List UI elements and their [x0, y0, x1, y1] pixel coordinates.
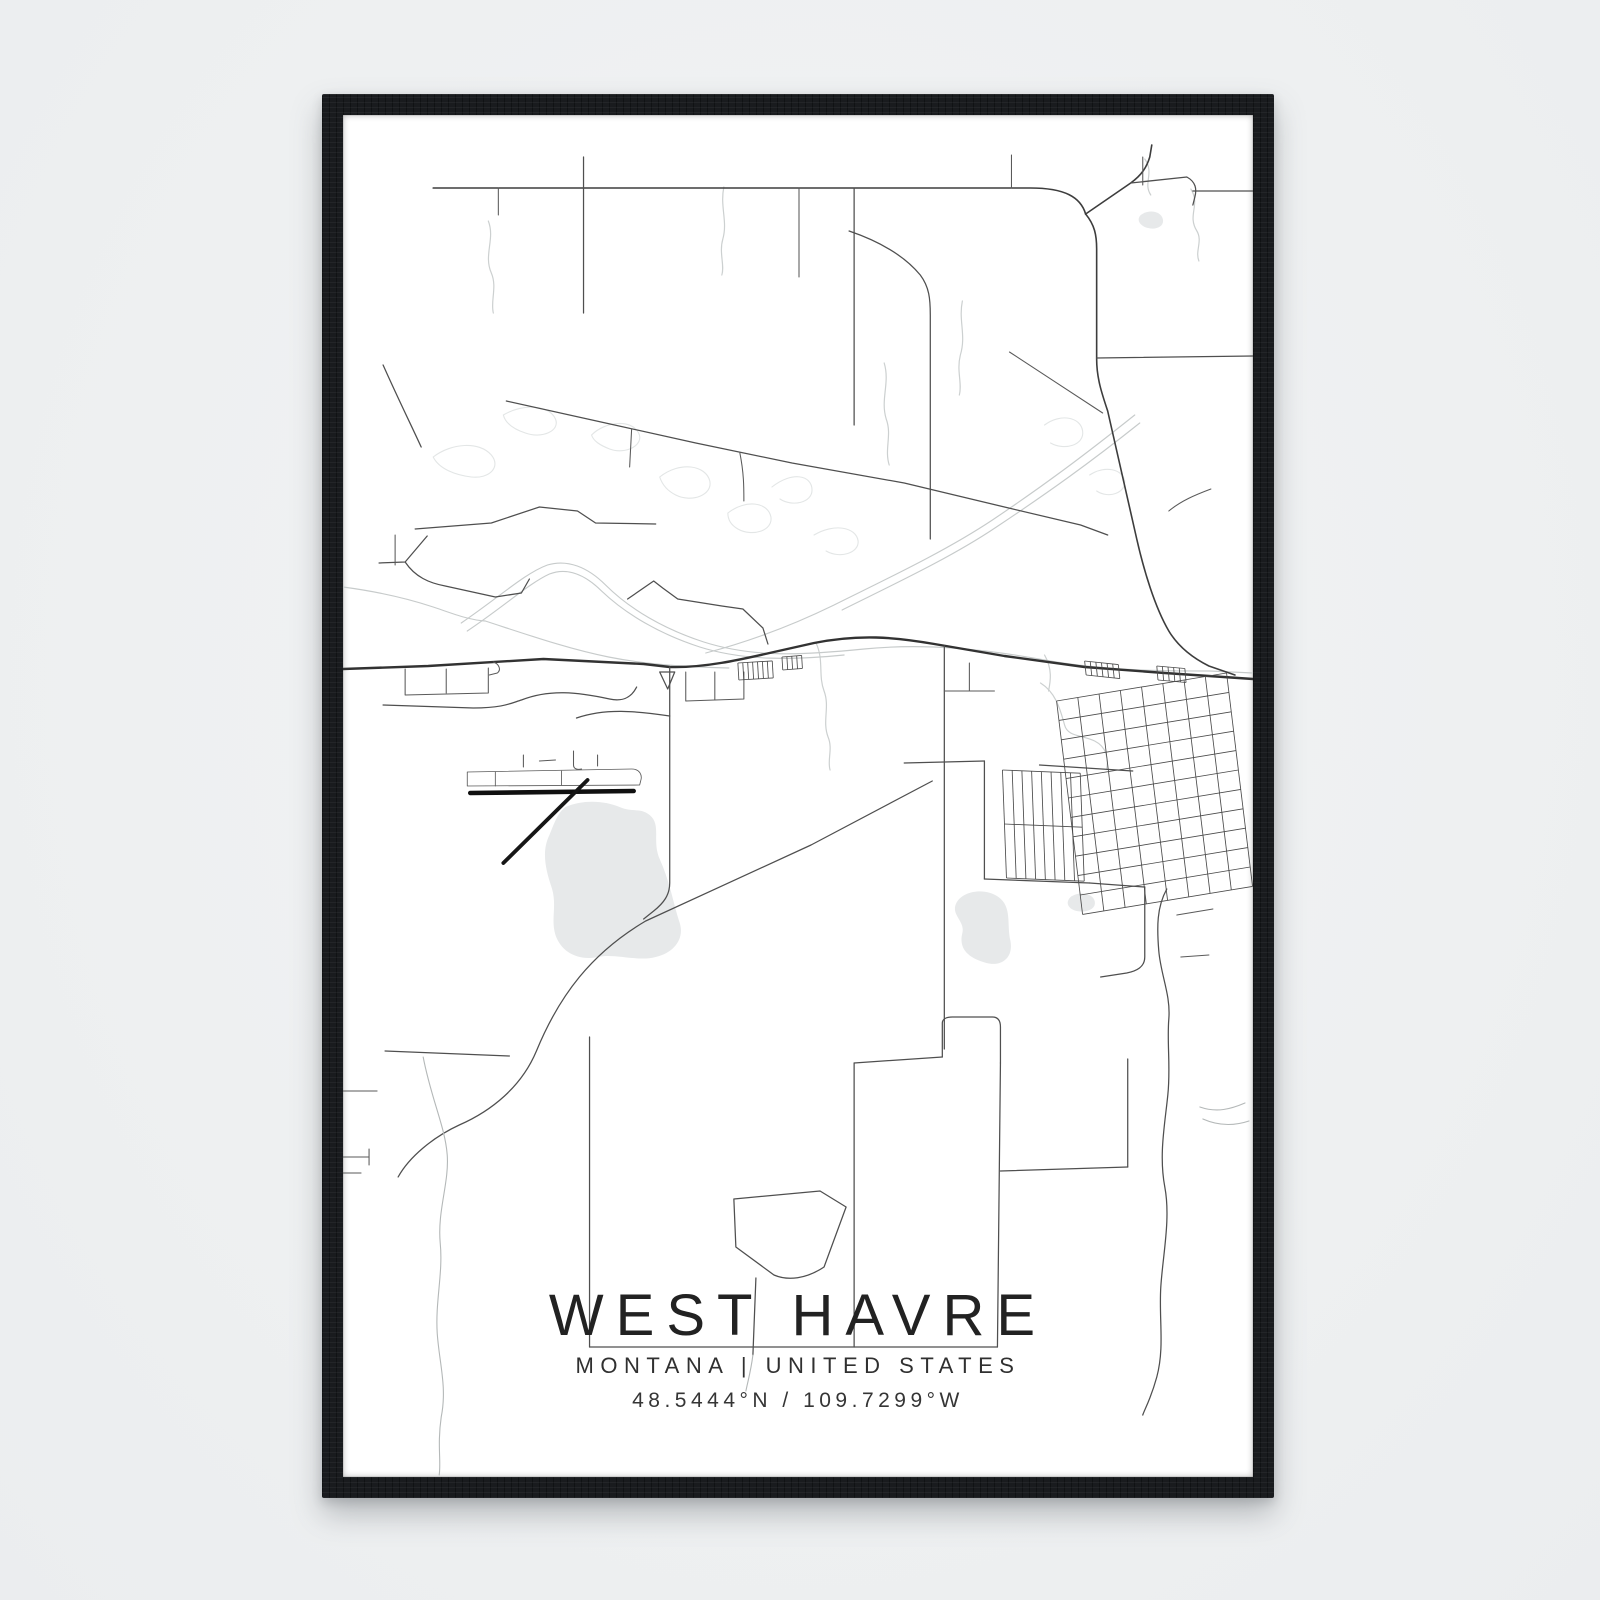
city-grid-line — [1099, 694, 1125, 907]
street-768-ext — [1090, 883, 1145, 887]
comb-rail-a-line — [1118, 665, 1120, 679]
oxbow-8 — [1045, 418, 1083, 447]
road-mid-right-h — [1097, 356, 1253, 358]
city-grid-line — [1205, 677, 1231, 890]
comb-main-c-line — [758, 662, 759, 679]
road-fork-down — [405, 562, 529, 597]
comb-main-d-line — [802, 655, 803, 668]
junction-wedge — [660, 672, 675, 689]
oxbow-4 — [660, 467, 710, 498]
branch-right-1 — [1200, 1103, 1245, 1110]
oxbow-9 — [1090, 469, 1125, 494]
comb-rail-b-line — [1168, 667, 1169, 681]
apron-mark-2 — [539, 760, 555, 761]
branch-right-2 — [1203, 1119, 1249, 1125]
creek-below-road — [816, 643, 830, 770]
road-zigzag-a — [415, 507, 656, 529]
rail-diagonal-ne — [706, 415, 1135, 653]
road-left-curve — [383, 365, 421, 447]
pond-city — [955, 891, 1011, 964]
road-mid-right-diag — [1009, 352, 1102, 413]
poster-coordinates: 48.5444°N / 109.7299°W — [343, 1389, 1253, 1413]
rail-diagonal-ne-2 — [842, 423, 1140, 610]
comb-main-c-line — [762, 662, 763, 679]
railway-hump-2 — [467, 571, 844, 658]
road-fork-up — [379, 536, 427, 563]
apron-mark-3 — [574, 751, 582, 769]
comb-rail-b-line — [1157, 666, 1185, 669]
highway-branch-ne — [1086, 145, 1152, 214]
oxbow-3 — [592, 423, 640, 450]
street-800-v — [1101, 887, 1145, 977]
road-center-vertical — [849, 231, 930, 539]
railway-hump — [461, 563, 1253, 673]
oxbow-2 — [503, 407, 556, 435]
road-sw-diagonal — [398, 781, 932, 1177]
road-below-airport — [577, 711, 670, 718]
comb-rail-a-line — [1107, 663, 1109, 677]
city-grid-line — [1142, 687, 1168, 900]
rect-top — [854, 1057, 942, 1063]
hook-main — [489, 662, 499, 675]
runway-outline — [467, 769, 641, 786]
poster-frame: WEST HAVRE MONTANA | UNITED STATES 48.54… — [322, 94, 1274, 1498]
poster-subtitle: MONTANA | UNITED STATES — [343, 1353, 1253, 1379]
city-grid-line — [1227, 673, 1253, 886]
oxbow-6 — [772, 477, 812, 503]
airport-access — [383, 687, 637, 708]
road-bl-horizontal — [385, 1051, 509, 1056]
stream-1 — [488, 221, 494, 313]
street-836 — [1181, 955, 1209, 957]
comb-rail-a-line — [1096, 662, 1098, 676]
comb-main-c-line — [743, 663, 744, 680]
comb-rail-b-line — [1174, 668, 1175, 682]
creek-town — [1041, 683, 1108, 769]
pond-topright — [1139, 212, 1163, 229]
runway-main — [470, 791, 633, 793]
rect-notch — [942, 1017, 1000, 1063]
city-map — [343, 115, 1253, 1477]
river-left — [343, 587, 729, 668]
comb-rail-a-line — [1113, 664, 1115, 678]
poster-title: WEST HAVRE — [343, 1282, 1253, 1349]
street-832 — [1177, 909, 1213, 915]
stream-3 — [959, 301, 963, 395]
lake-big — [545, 802, 681, 959]
comb-rail-a-line — [1101, 663, 1103, 677]
comb-rail-b-line — [1179, 668, 1180, 682]
road-topright-jog — [1131, 177, 1196, 205]
road-top-horizontal — [433, 188, 1085, 214]
road-diag-stub-2 — [740, 453, 744, 501]
city-grid-line — [1163, 684, 1189, 897]
comb-rail-b-line — [1162, 667, 1163, 681]
city-grid-line — [1184, 680, 1210, 893]
comb-main-c-line — [748, 662, 749, 679]
stream-4 — [1145, 159, 1151, 195]
comb-main-c-line — [753, 662, 754, 679]
comb-main-c-line — [772, 661, 773, 678]
comb-rail-b-line — [1157, 666, 1158, 680]
blocks-right-h — [1000, 1167, 1127, 1171]
stream-6 — [884, 363, 889, 465]
city-grid-line — [1120, 691, 1146, 904]
map-poster: WEST HAVRE MONTANA | UNITED STATES 48.54… — [343, 115, 1253, 1477]
oxbow-5 — [728, 504, 771, 533]
highway-right — [1086, 214, 1235, 675]
comb-main-c-line — [738, 663, 739, 680]
pentagon — [734, 1191, 846, 1278]
road-zigzag-b — [628, 581, 768, 644]
stream-2 — [721, 187, 724, 275]
comb-main-c-line — [767, 661, 768, 678]
comb-main-d-line — [782, 657, 783, 670]
oxbow-1 — [433, 445, 495, 477]
road-right-diag-low — [1169, 489, 1211, 511]
road-long-diagonal — [506, 401, 1107, 535]
oxbow-7 — [814, 528, 858, 555]
stream-5 — [1191, 189, 1199, 261]
